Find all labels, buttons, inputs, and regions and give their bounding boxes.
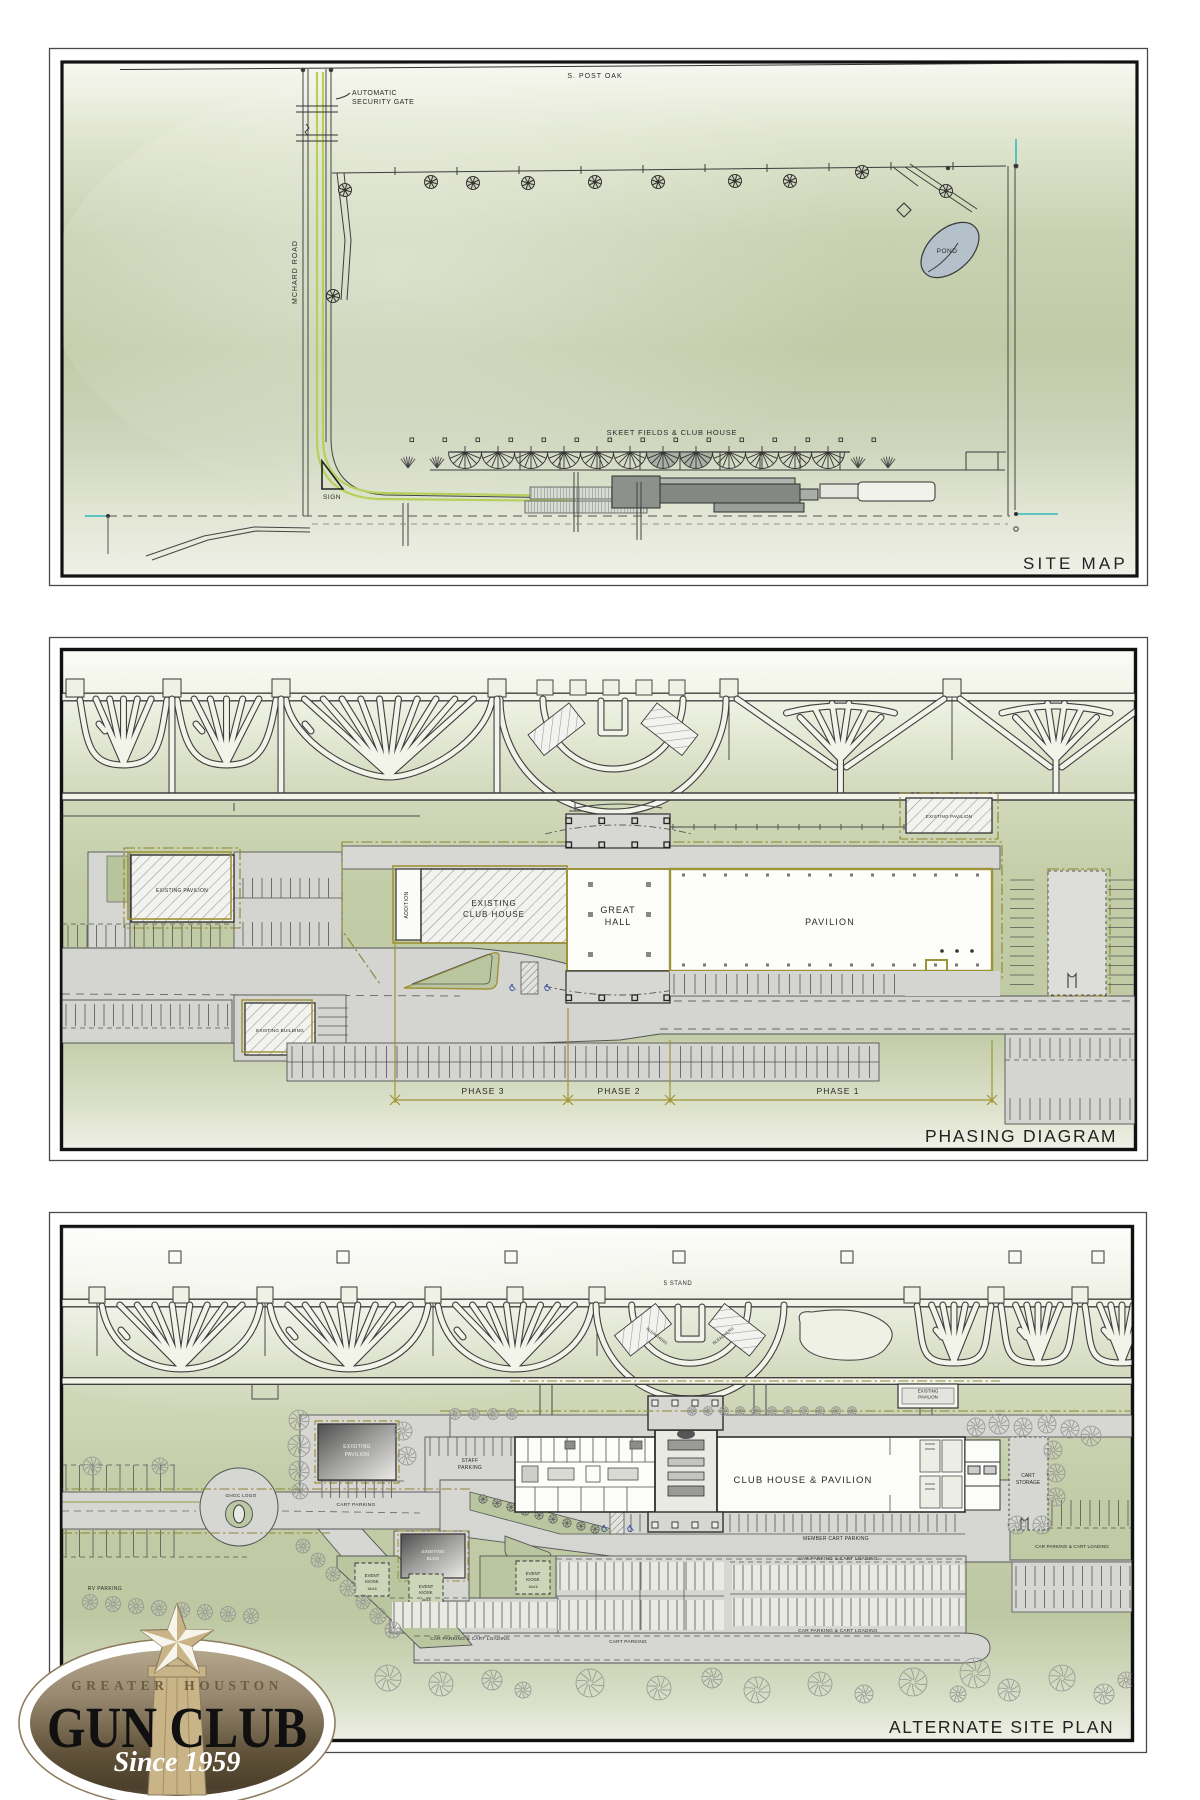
svg-text:SKEET FIELDS & CLUB HOUSE: SKEET FIELDS & CLUB HOUSE [607,428,738,437]
svg-text:AUTOMATIC: AUTOMATIC [352,90,397,97]
svg-text:KIOSK: KIOSK [365,1579,378,1584]
svg-text:HALL: HALL [605,917,632,927]
svg-text:CAR PARKING & CART LOADING: CAR PARKING & CART LOADING [798,1628,878,1634]
svg-text:STORAGE: STORAGE [1016,1480,1041,1486]
svg-text:PHASE 2: PHASE 2 [598,1086,641,1096]
svg-text:SITE MAP: SITE MAP [1023,554,1128,573]
svg-text:GREAT: GREAT [600,905,635,915]
svg-text:CAR PARKING & CART LOADING: CAR PARKING & CART LOADING [1035,1544,1109,1549]
svg-text:EXISITING: EXISITING [343,1444,370,1450]
svg-text:CART: CART [1021,1473,1035,1479]
svg-text:S. POST OAK: S. POST OAK [567,73,622,80]
svg-text:SECURITY GATE: SECURITY GATE [352,99,414,106]
svg-text:GREATER HOUSTON: GREATER HOUSTON [71,1678,283,1693]
svg-text:PAVILION: PAVILION [918,1395,938,1400]
svg-text:RV PARKING: RV PARKING [88,1586,122,1592]
svg-text:STAFF: STAFF [462,1458,479,1464]
svg-text:PHASING DIAGRAM: PHASING DIAGRAM [925,1126,1117,1146]
svg-text:CAR PARKING & CART LOADING: CAR PARKING & CART LOADING [430,1636,510,1642]
svg-text:CART PARKING: CART PARKING [336,1502,375,1508]
svg-text:EVENT: EVENT [419,1584,434,1589]
svg-text:SIGN: SIGN [323,494,341,501]
svg-text:EXISTING PAVILION: EXISTING PAVILION [156,888,208,894]
svg-text:EXISTING BUILDING: EXISTING BUILDING [256,1028,304,1033]
svg-text:16x16: 16x16 [421,1598,430,1602]
svg-text:PHASE 1: PHASE 1 [817,1086,860,1096]
svg-text:Since 1959: Since 1959 [114,1747,241,1778]
svg-text:EXISTING: EXISTING [918,1389,939,1394]
svg-text:KIOSK: KIOSK [526,1577,539,1582]
svg-text:5 STAND: 5 STAND [664,1281,693,1287]
svg-text:KIOSK: KIOSK [419,1590,432,1595]
svg-text:MEMBER CART PARKING: MEMBER CART PARKING [803,1536,869,1542]
svg-text:16x16: 16x16 [528,1585,537,1589]
svg-text:PHASE 3: PHASE 3 [462,1086,505,1096]
svg-text:EXISTING PAVILION: EXISTING PAVILION [926,814,973,819]
svg-text:16x16: 16x16 [367,1587,376,1591]
svg-text:MCHARD ROAD: MCHARD ROAD [292,240,299,304]
svg-text:EXISITING: EXISITING [422,1549,445,1554]
svg-text:GHGC LOGO: GHGC LOGO [225,1493,256,1498]
svg-text:CLUB HOUSE: CLUB HOUSE [463,910,525,919]
svg-text:POND: POND [937,248,958,255]
svg-text:BLDG: BLDG [427,1556,440,1561]
svg-text:ADDITION: ADDITION [404,891,410,918]
svg-text:PAVILION: PAVILION [345,1452,370,1458]
svg-text:PARKING: PARKING [458,1465,482,1471]
svg-text:CLUB HOUSE & PAVILION: CLUB HOUSE & PAVILION [734,1475,873,1486]
svg-text:EXISTING: EXISTING [471,899,516,908]
svg-text:ALTERNATE SITE PLAN: ALTERNATE SITE PLAN [889,1717,1114,1737]
svg-text:PAVILION: PAVILION [805,917,855,927]
svg-text:CART PARKING: CART PARKING [609,1639,647,1645]
svg-text:EVENT: EVENT [526,1571,541,1576]
svg-text:EVENT: EVENT [365,1573,380,1578]
